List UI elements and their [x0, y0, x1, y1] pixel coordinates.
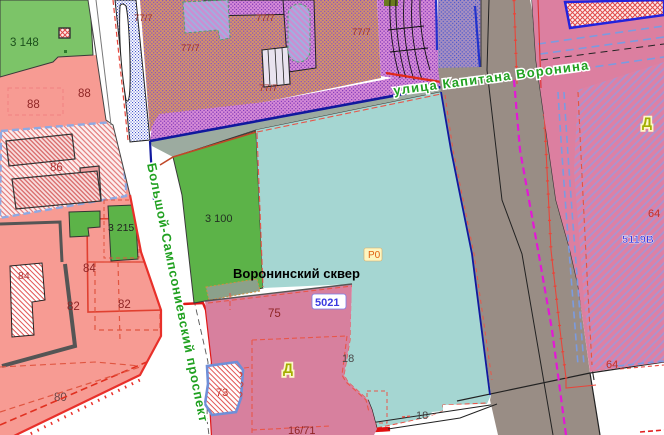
- svg-text:77/7: 77/7: [181, 43, 200, 54]
- svg-text:73: 73: [216, 387, 228, 399]
- svg-text:Д: Д: [642, 114, 652, 130]
- svg-text:84: 84: [18, 270, 30, 282]
- svg-text:82: 82: [118, 299, 131, 311]
- svg-text:77/7: 77/7: [352, 27, 371, 38]
- svg-text:Воронинский сквер: Воронинский сквер: [233, 266, 360, 281]
- svg-text:18: 18: [416, 410, 428, 422]
- svg-text:75: 75: [268, 308, 281, 320]
- svg-text:88: 88: [78, 88, 91, 100]
- svg-text:82: 82: [67, 301, 80, 313]
- svg-text:3 215: 3 215: [108, 222, 134, 234]
- svg-text:64: 64: [606, 359, 618, 371]
- svg-text:77/7: 77/7: [134, 13, 153, 24]
- svg-text:5021: 5021: [315, 297, 339, 309]
- svg-text:77/7: 77/7: [259, 83, 278, 94]
- svg-text:Д: Д: [283, 360, 293, 376]
- svg-text:64: 64: [648, 208, 660, 220]
- svg-text:3 100: 3 100: [205, 213, 233, 225]
- svg-text:84: 84: [83, 263, 96, 275]
- svg-text:5119В: 5119В: [622, 234, 654, 246]
- svg-text:Р0: Р0: [368, 250, 381, 261]
- svg-text:3 148: 3 148: [10, 37, 39, 49]
- svg-text:16/71: 16/71: [288, 425, 316, 435]
- svg-text:88: 88: [27, 99, 40, 111]
- svg-text:86: 86: [50, 162, 63, 174]
- svg-text:77/7: 77/7: [256, 13, 275, 24]
- svg-text:18: 18: [342, 353, 354, 365]
